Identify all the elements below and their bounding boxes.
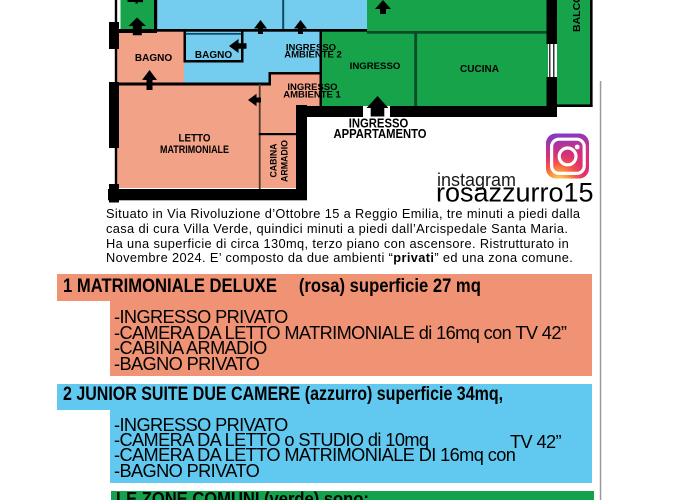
svg-text:CABINA: CABINA [269, 143, 279, 178]
svg-text:LETTO: LETTO [179, 132, 211, 144]
svg-text:AMBIENTE 2: AMBIENTE 2 [284, 50, 342, 61]
svg-text:rosazzurro15: rosazzurro15 [436, 178, 594, 208]
svg-text:MATRIMONIALE: MATRIMONIALE [160, 144, 229, 156]
svg-text:APPARTAMENTO: APPARTAMENTO [334, 126, 427, 141]
svg-text:CUCINA: CUCINA [460, 64, 499, 75]
svg-text:BAGNO: BAGNO [195, 50, 232, 61]
svg-text:BALCONE: BALCONE [571, 0, 583, 32]
svg-text:ARMADIO: ARMADIO [280, 140, 290, 182]
svg-text:INGRESSO: INGRESSO [350, 61, 401, 72]
svg-text:BAGNO: BAGNO [135, 53, 172, 64]
svg-text:AMBIENTE 1: AMBIENTE 1 [283, 90, 341, 101]
